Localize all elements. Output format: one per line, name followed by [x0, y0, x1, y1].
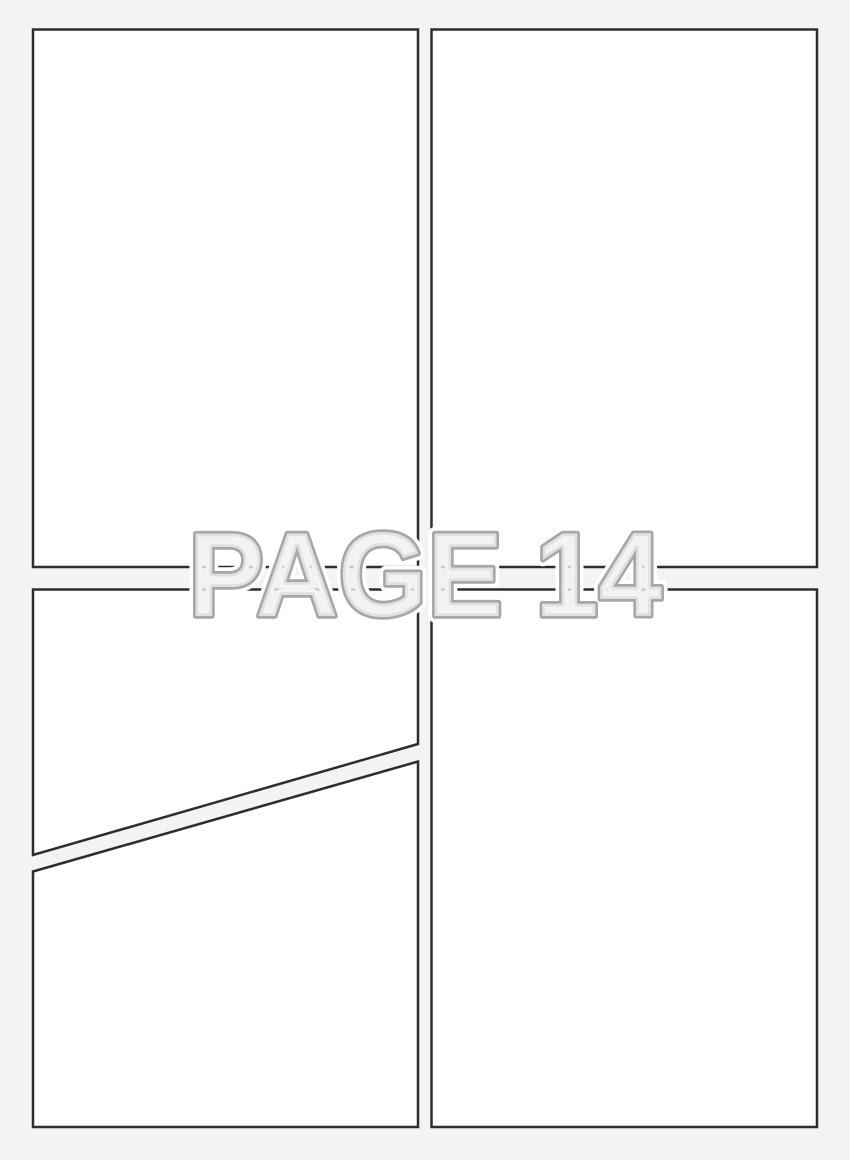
watermark-text: PAGE 14 [188, 508, 662, 642]
panel-top-right [432, 30, 818, 568]
comic-page-canvas: PAGE 14 PAGE 14 [0, 0, 850, 1160]
panel-bottom-right [432, 590, 818, 1128]
panel-top-left [33, 30, 418, 568]
page-number-watermark: PAGE 14 PAGE 14 [188, 508, 662, 642]
comic-page-template: PAGE 14 PAGE 14 [0, 0, 850, 1160]
